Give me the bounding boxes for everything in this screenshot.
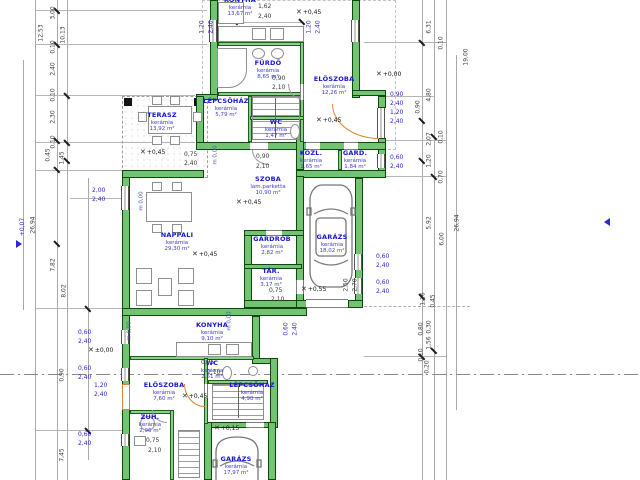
elevation-value: +0,45: [243, 199, 261, 206]
parapet-note: m 0,00: [213, 145, 219, 164]
room-label-gardrob: GARDRÓB kerámia 2,82 m²: [246, 236, 298, 257]
dimension-label: 1,62: [258, 4, 271, 10]
dimension-label: 0,75: [269, 288, 282, 294]
parapet-note: m 0,00: [139, 191, 145, 210]
window-dim-label: 0,60: [284, 322, 290, 335]
plot-dashed-line: [364, 306, 470, 307]
front-door-leaf: [122, 384, 130, 410]
dimension-label: 1,16: [421, 292, 427, 305]
dimension-label: 0,10: [439, 130, 445, 143]
window-dim-label: 2,40: [78, 375, 91, 381]
elevation-value: +0,45: [303, 9, 321, 16]
dimension-line: [446, 0, 447, 480]
wall-segment: [296, 170, 386, 178]
elevation-cross-icon: ✕: [301, 285, 307, 293]
room-label-eloszoba-top: ELŐSZOBA kerámia 12,26 m²: [304, 76, 364, 97]
elevation-value: +0,45: [199, 251, 217, 258]
dimension-label: 2,50: [344, 278, 350, 291]
window: [121, 368, 129, 381]
dimension-label: 2,10: [148, 448, 161, 454]
elevation-marker: ✕+0,55: [301, 285, 326, 293]
room-name: GARÁZS: [308, 234, 356, 242]
elevation-value: +0,45: [147, 149, 165, 156]
elevation-marker: ✕+0,15: [214, 424, 239, 432]
dimension-label: 0,10: [51, 135, 57, 148]
washbasin: [252, 48, 265, 59]
washbasin: [134, 436, 146, 446]
window-dim-label: 0,60: [376, 254, 389, 260]
room-name: LÉPCSŐHÁZ: [194, 98, 258, 106]
dimension-label: 19,00: [464, 48, 470, 65]
exterior-steps: [178, 430, 200, 478]
room-name: FÜRDŐ: [242, 60, 294, 68]
wall-segment: [268, 422, 276, 480]
room-label-gard: GARD. kerámia 1,84 m²: [335, 150, 375, 171]
elevation-value: +0,55: [308, 286, 326, 293]
chair: [172, 182, 182, 191]
cooktop: [226, 344, 239, 355]
dimension-label: 2,40: [184, 161, 197, 167]
dimension-label: 1,56: [427, 336, 433, 349]
parapet-note: m 0,00: [127, 321, 133, 340]
room-label-lepcsohaz-top: LÉPCSŐHÁZ kerámia 5,79 m²: [194, 98, 258, 119]
dimension-label: 0,45: [431, 294, 437, 307]
window-dim-label: 1,20: [94, 383, 107, 389]
room-label-tar: TÁR. kerámia 3,17 m²: [249, 268, 293, 289]
washbasin: [248, 366, 258, 376]
room-name: TÁR.: [249, 268, 293, 276]
room-label-szoba: SZOBA lam.parketta 10,90 m²: [242, 176, 294, 197]
extension-line: [35, 308, 122, 309]
dimension-label: 7,45: [60, 448, 66, 461]
window-dim-label: 1,20: [307, 20, 313, 33]
armchair: [178, 290, 194, 306]
window: [121, 434, 129, 446]
room-label-zuh: ZUH. kerámia 2,96 m²: [128, 414, 172, 435]
garage-door-opening: [306, 299, 348, 308]
floor-plan-drawing: KONYHA kerámia 13,67 m² FÜRDŐ kerámia 8,…: [0, 0, 640, 480]
window-dim-label: 2,40: [94, 392, 107, 398]
wall-segment: [122, 170, 204, 178]
window: [377, 154, 385, 168]
room-label-garazs-bottom: GARÁZS kerámia 17,97 m²: [210, 456, 262, 477]
window: [351, 20, 359, 42]
room-label-garazs-top: GARÁZS kerámia 18,02 m²: [308, 234, 356, 255]
dimension-label: 0,10: [51, 40, 57, 53]
room-area: 5,79 m²: [194, 112, 258, 119]
section-line: [0, 374, 640, 375]
terrace-post: [124, 98, 132, 106]
room-name: SZOBA: [242, 176, 294, 184]
elevation-value: +0,45: [189, 393, 207, 400]
dimension-label: 0,30: [427, 320, 433, 333]
wall-segment: [378, 96, 386, 108]
armchair: [178, 268, 194, 284]
elevation-cross-icon: ✕: [214, 424, 220, 432]
dimension-label: 2,10: [207, 370, 220, 376]
window-dim-label: 0,90: [390, 92, 403, 98]
dimension-label: 2,40: [258, 14, 271, 20]
dimension-label: 0,75: [201, 360, 214, 366]
dimension-label: 1,20: [427, 154, 433, 167]
room-name: ELŐSZOBA: [304, 76, 364, 84]
room-area: 2,96 m²: [128, 428, 172, 435]
dimension-label: 10,13: [61, 26, 67, 43]
window-dim-label: 2,40: [376, 289, 389, 295]
elevation-marker: ✕±0,00: [88, 346, 113, 354]
elevation-value: ±0,00: [95, 347, 113, 354]
window-dim-label: 2,40: [376, 263, 389, 269]
window-dim-label: 2,40: [78, 339, 91, 345]
dimension-label: 0,90: [60, 368, 66, 381]
dimension-line: [456, 55, 457, 410]
total-dimension-label: 26,94: [455, 214, 461, 231]
dimension-label: 3,00: [51, 6, 57, 19]
elevation-value: +0,15: [221, 425, 239, 432]
level-marker-icon: [604, 218, 610, 226]
dimension-label: 0,10: [439, 36, 445, 49]
elevation-cross-icon: ✕: [88, 346, 94, 354]
wall-segment: [122, 308, 307, 316]
chair: [170, 136, 180, 145]
room-area: 1,65 m²: [291, 164, 331, 171]
dimension-label: 4,80: [427, 88, 433, 101]
dining-table: [146, 192, 192, 222]
elevation-marker: ✕+0,45: [140, 148, 165, 156]
elevation-value: +0,00: [383, 71, 401, 78]
window-dim-label: 2,40: [390, 101, 403, 107]
dimension-label: 6,00: [440, 232, 446, 245]
window-dim-label: 2,40: [209, 20, 215, 33]
chair: [152, 136, 162, 145]
dimension-label: 0,45: [46, 148, 52, 161]
room-area: 9,10 m²: [186, 336, 238, 343]
dimension-label: 0,75: [146, 438, 159, 444]
elevation-cross-icon: ✕: [296, 8, 302, 16]
dimension-line: [422, 0, 423, 480]
window-dim-label: 1,20: [390, 110, 403, 116]
elevation-marker: ✕+0,00: [376, 70, 401, 78]
dimension-label: 1,45: [60, 151, 66, 164]
elevation-cross-icon: ✕: [236, 198, 242, 206]
dimension-label: 2,70: [353, 278, 359, 291]
dimension-line: [434, 0, 435, 480]
elevation-value: +0,45: [323, 117, 341, 124]
garage-door-opening: [246, 422, 264, 428]
dimension-label: 0,80: [419, 322, 425, 335]
window-dim-label: 1,20: [200, 20, 206, 33]
extension-line: [35, 170, 122, 171]
window-dim-label: 2,40: [293, 322, 299, 335]
room-area: 8,65 m²: [242, 74, 294, 81]
dimension-label: 0,75: [184, 152, 197, 158]
window-dim-label: 2,40: [92, 197, 105, 203]
room-area: 2,82 m²: [246, 250, 298, 257]
room-area: 1,84 m²: [335, 164, 375, 171]
extension-line: [35, 44, 207, 45]
window-dim-label: 0,60: [78, 432, 91, 438]
window: [121, 186, 129, 210]
dimension-label: 6,31: [427, 20, 433, 33]
room-label-furdo: FÜRDŐ kerámia 8,65 m²: [242, 60, 294, 81]
dimension-label: 0,90: [416, 100, 422, 113]
door-opening: [250, 142, 268, 150]
kitchen-sink: [252, 28, 266, 40]
dimension-line: [57, 0, 58, 480]
window-dim-label: 2,40: [390, 119, 403, 125]
room-name: NAPPALI: [149, 232, 205, 240]
dimension-label: 0,90: [272, 76, 285, 82]
level-value: +0,07: [20, 218, 26, 236]
window-dim-label: 2,40: [390, 164, 403, 170]
room-area: 4,90 m²: [220, 396, 284, 403]
room-name: ZUH.: [128, 414, 172, 422]
armchair: [136, 290, 152, 306]
window-dim-label: 0,60: [78, 366, 91, 372]
room-area: 10,90 m²: [242, 190, 294, 197]
room-name: GARÁZS: [210, 456, 262, 464]
room-name: LÉPCSŐHÁZ: [220, 382, 284, 390]
partition-wall: [218, 42, 304, 46]
dimension-label: 2,10: [256, 164, 269, 170]
coffee-table: [158, 278, 172, 296]
room-name: GARD.: [335, 150, 375, 158]
window-dim-label: 0,60: [390, 155, 403, 161]
elevation-marker: ✕+0,45: [296, 8, 321, 16]
dimension-label: 2,10: [272, 85, 285, 91]
room-label-kozl: KÖZL. kerámia 1,65 m²: [291, 150, 331, 171]
dimension-line: [23, 60, 24, 310]
room-area: 1,47 m²: [256, 133, 296, 140]
elevation-cross-icon: ✕: [316, 116, 322, 124]
room-label-lepcsohaz-bottom: LÉPCSŐHÁZ kerámia 4,90 m²: [220, 382, 284, 403]
window-dim-label: 2,00: [92, 188, 105, 194]
room-area: 17,97 m²: [210, 470, 262, 477]
room-label-wc-top: WC kerámia 1,47 m²: [256, 119, 296, 140]
dimension-label: 0,20: [425, 360, 431, 373]
kitchen-sink: [270, 28, 284, 40]
elevation-marker: ✕+0,45: [236, 198, 261, 206]
elevation-marker: ✕+0,45: [192, 250, 217, 258]
dimension-label: 0,70: [439, 170, 445, 183]
room-label-terasz: TERASZ kerámia 13,92 m²: [136, 112, 188, 133]
dimension-label: 12,53: [39, 24, 45, 41]
room-name: GARDRÓB: [246, 236, 298, 244]
elevation-marker: ✕+0,45: [182, 392, 207, 400]
window-dim-label: 0,60: [78, 330, 91, 336]
extension-line: [35, 10, 207, 11]
dimension-line: [88, 178, 89, 460]
chair: [152, 96, 162, 105]
room-area: 18,02 m²: [308, 248, 356, 255]
dimension-label: 2,07: [427, 132, 433, 145]
elevation-cross-icon: ✕: [182, 392, 188, 400]
parapet-note: m 0,00: [227, 311, 233, 330]
elevation-cross-icon: ✕: [140, 148, 146, 156]
dimension-label: 0,90: [256, 154, 269, 160]
dimension-label: 5,92: [427, 216, 433, 229]
elevation-cross-icon: ✕: [192, 250, 198, 258]
dimension-label: 8,02: [62, 284, 68, 297]
room-name: TERASZ: [136, 112, 188, 120]
total-dimension-label: 26,94: [31, 216, 37, 233]
kitchen-sink: [208, 344, 221, 355]
window-dim-label: 0,60: [376, 280, 389, 286]
wall-segment: [348, 300, 363, 308]
extension-line: [364, 356, 446, 357]
dimension-label: 7,82: [51, 258, 57, 271]
washbasin: [271, 48, 284, 59]
dimension-label: 2,10: [271, 297, 284, 303]
room-area: 12,26 m²: [304, 90, 364, 97]
room-area: 13,92 m²: [136, 126, 188, 133]
dimension-line: [67, 0, 68, 480]
window-dim-label: 2,40: [78, 441, 91, 447]
elevation-cross-icon: ✕: [376, 70, 382, 78]
elevation-marker: ✕+0,45: [316, 116, 341, 124]
dimension-line: [35, 0, 36, 480]
room-name: ELŐSZOBA: [136, 382, 192, 390]
dimension-label: 2,40: [51, 62, 57, 75]
room-name: KÖZL.: [291, 150, 331, 158]
chair: [152, 182, 162, 191]
dimension-label: 0,10: [51, 88, 57, 101]
level-marker-icon: [16, 240, 22, 248]
room-name: WC: [256, 119, 296, 127]
chair: [170, 96, 180, 105]
window-dim-label: 2,40: [316, 20, 322, 33]
armchair: [136, 268, 152, 284]
dimension-label: 2,30: [51, 110, 57, 123]
